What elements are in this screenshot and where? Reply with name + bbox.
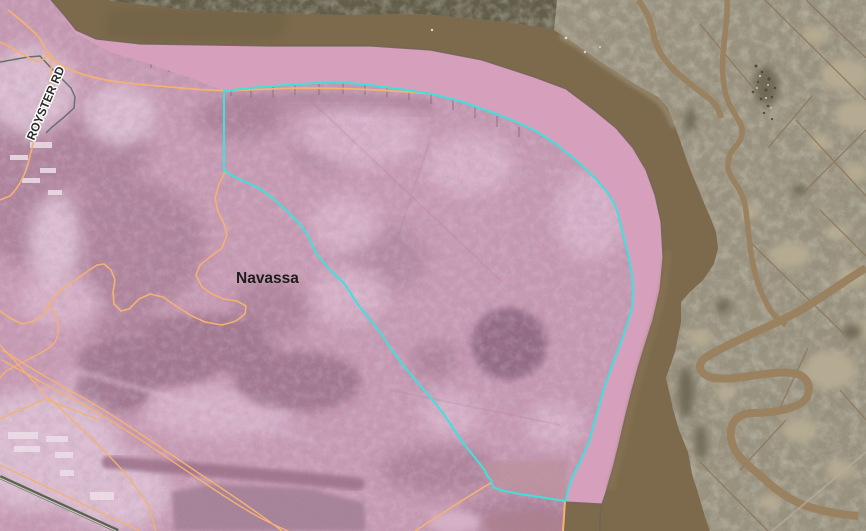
svg-text:Navassa: Navassa <box>236 270 299 287</box>
